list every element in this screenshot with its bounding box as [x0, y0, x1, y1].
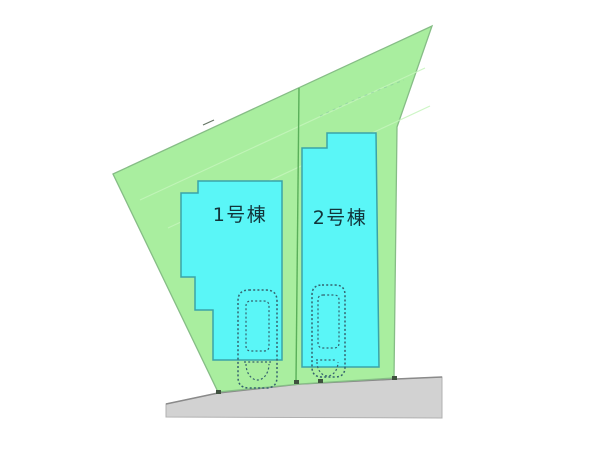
dimension-tick — [203, 120, 214, 125]
building-2-footprint — [302, 133, 379, 367]
building-2-label: 2号棟 — [313, 207, 368, 229]
site-plan-canvas: 1号棟 2号棟 — [0, 0, 600, 450]
site-plan-svg: 1号棟 2号棟 — [0, 0, 600, 450]
building-1-label: 1号棟 — [213, 204, 268, 226]
